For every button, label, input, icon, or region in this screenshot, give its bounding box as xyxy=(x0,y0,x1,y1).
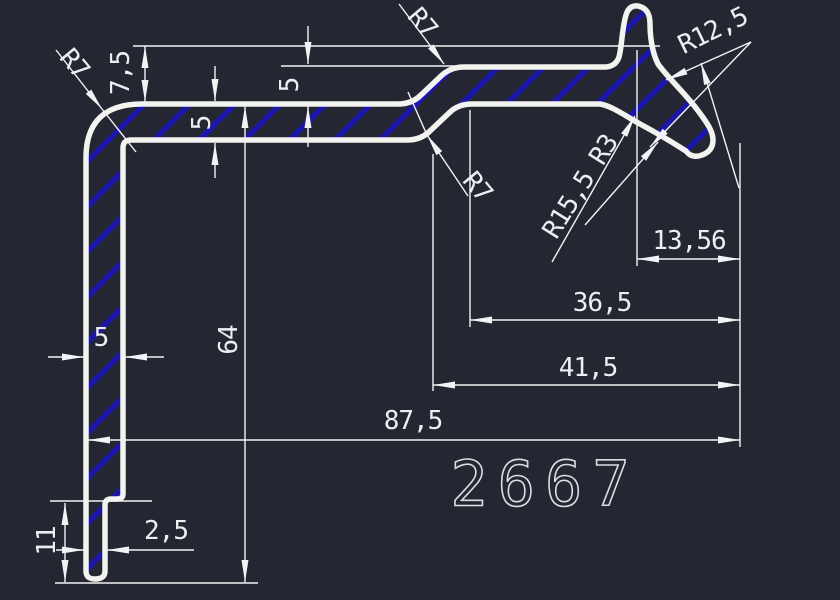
dim-wall-left-label: 5 xyxy=(94,323,109,353)
dim-87-5-label: 87,5 xyxy=(384,406,443,436)
dim-13-56-label: 13,56 xyxy=(652,226,725,256)
radius-r3-label: R3 xyxy=(584,130,625,171)
drawing-canvas[interactable]: 7,5 5 5 13,56 36,5 41,5 87,5 64 5 2,5 11… xyxy=(0,0,840,600)
radius-r12-5-label: R12,5 xyxy=(673,1,752,60)
dim-41-5-label: 41,5 xyxy=(559,353,618,383)
radius-r7-jog-label: R7 xyxy=(456,166,498,208)
radius-r7-topmid-label: R7 xyxy=(401,2,443,44)
dim-2-5-label: 2,5 xyxy=(144,516,188,546)
radius-r15-5-label: R15,5 xyxy=(537,166,601,244)
part-number: 2667 xyxy=(450,448,639,521)
dim-jog-offset-label: 5 xyxy=(275,78,305,93)
dim-7-5-label: 7,5 xyxy=(106,51,136,95)
dim-36-5-label: 36,5 xyxy=(573,288,632,318)
dim-wall-top-label: 5 xyxy=(187,116,217,131)
dim-11-label: 11 xyxy=(32,526,62,555)
cad-viewport: 7,5 5 5 13,56 36,5 41,5 87,5 64 5 2,5 11… xyxy=(0,0,840,600)
radius-r7-topleft-label: R7 xyxy=(53,43,95,85)
dim-64-label: 64 xyxy=(214,325,244,355)
